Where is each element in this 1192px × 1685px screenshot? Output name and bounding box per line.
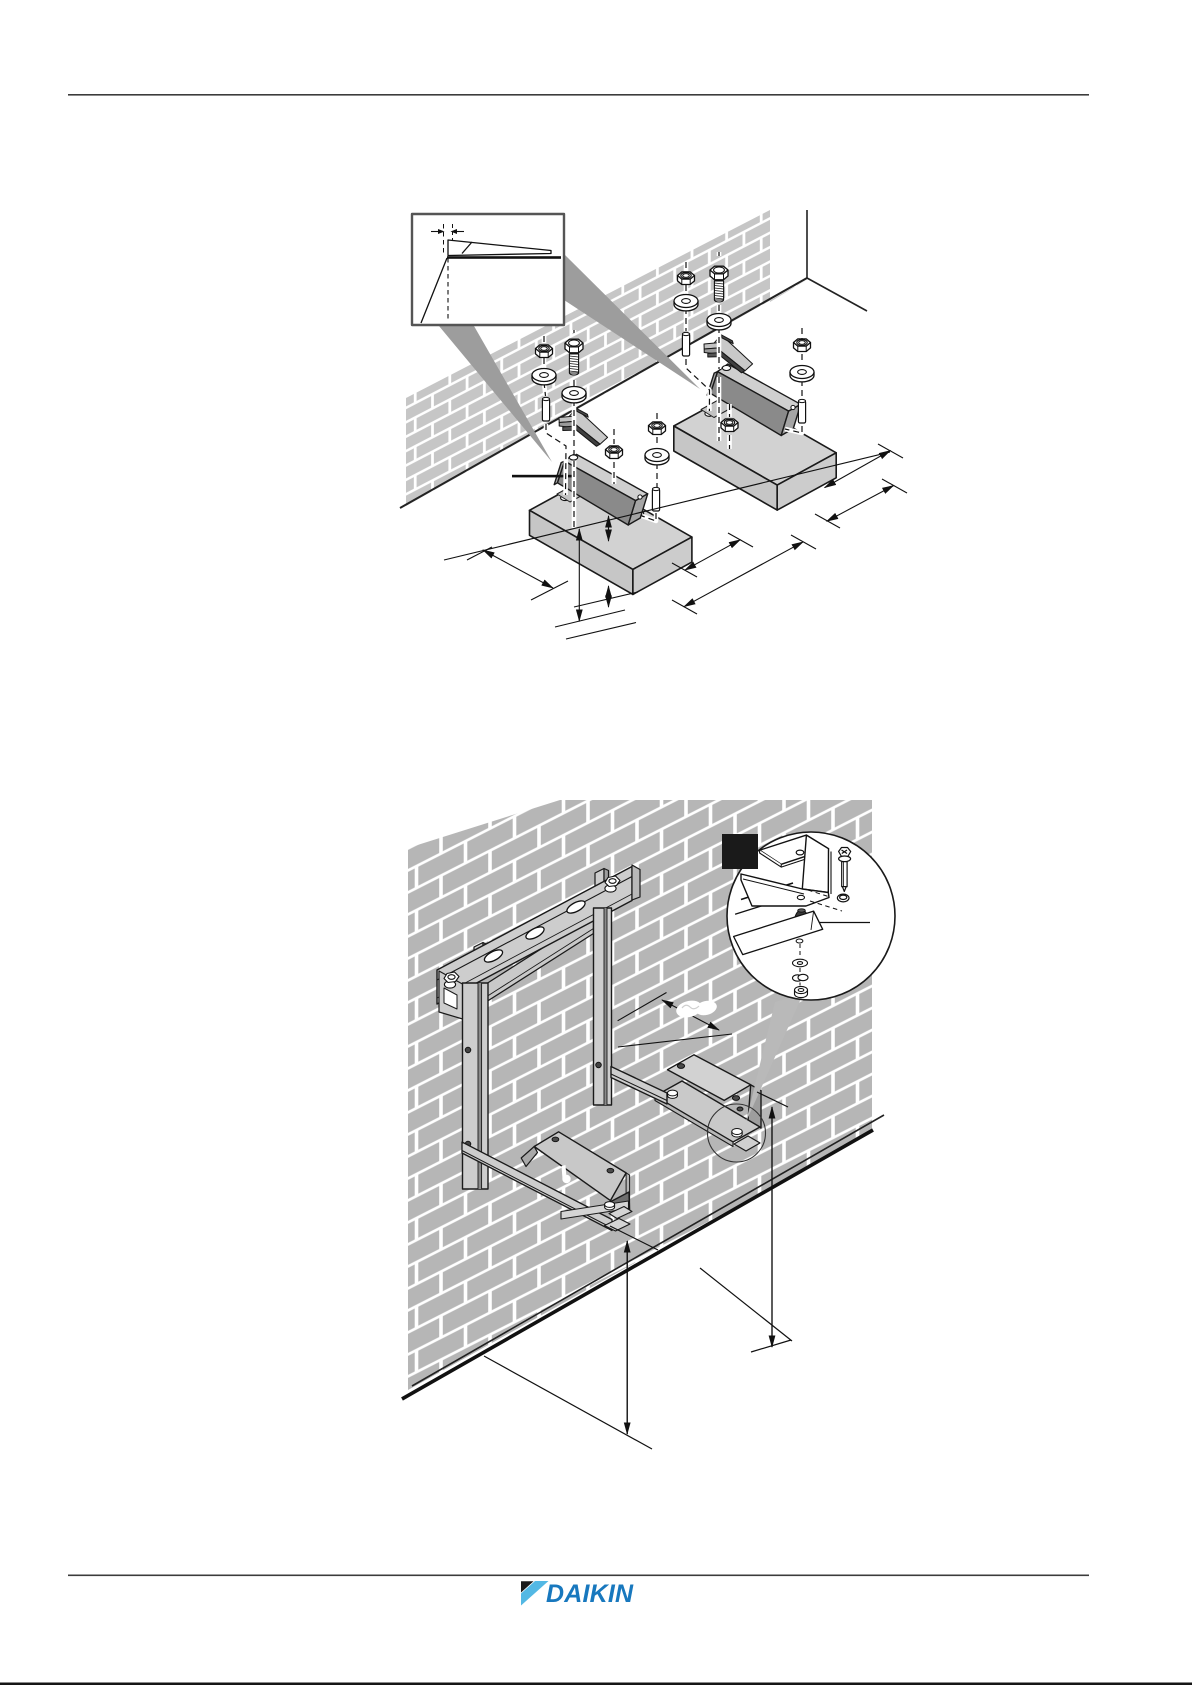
svg-text:DAIKIN: DAIKIN	[546, 1580, 634, 1608]
